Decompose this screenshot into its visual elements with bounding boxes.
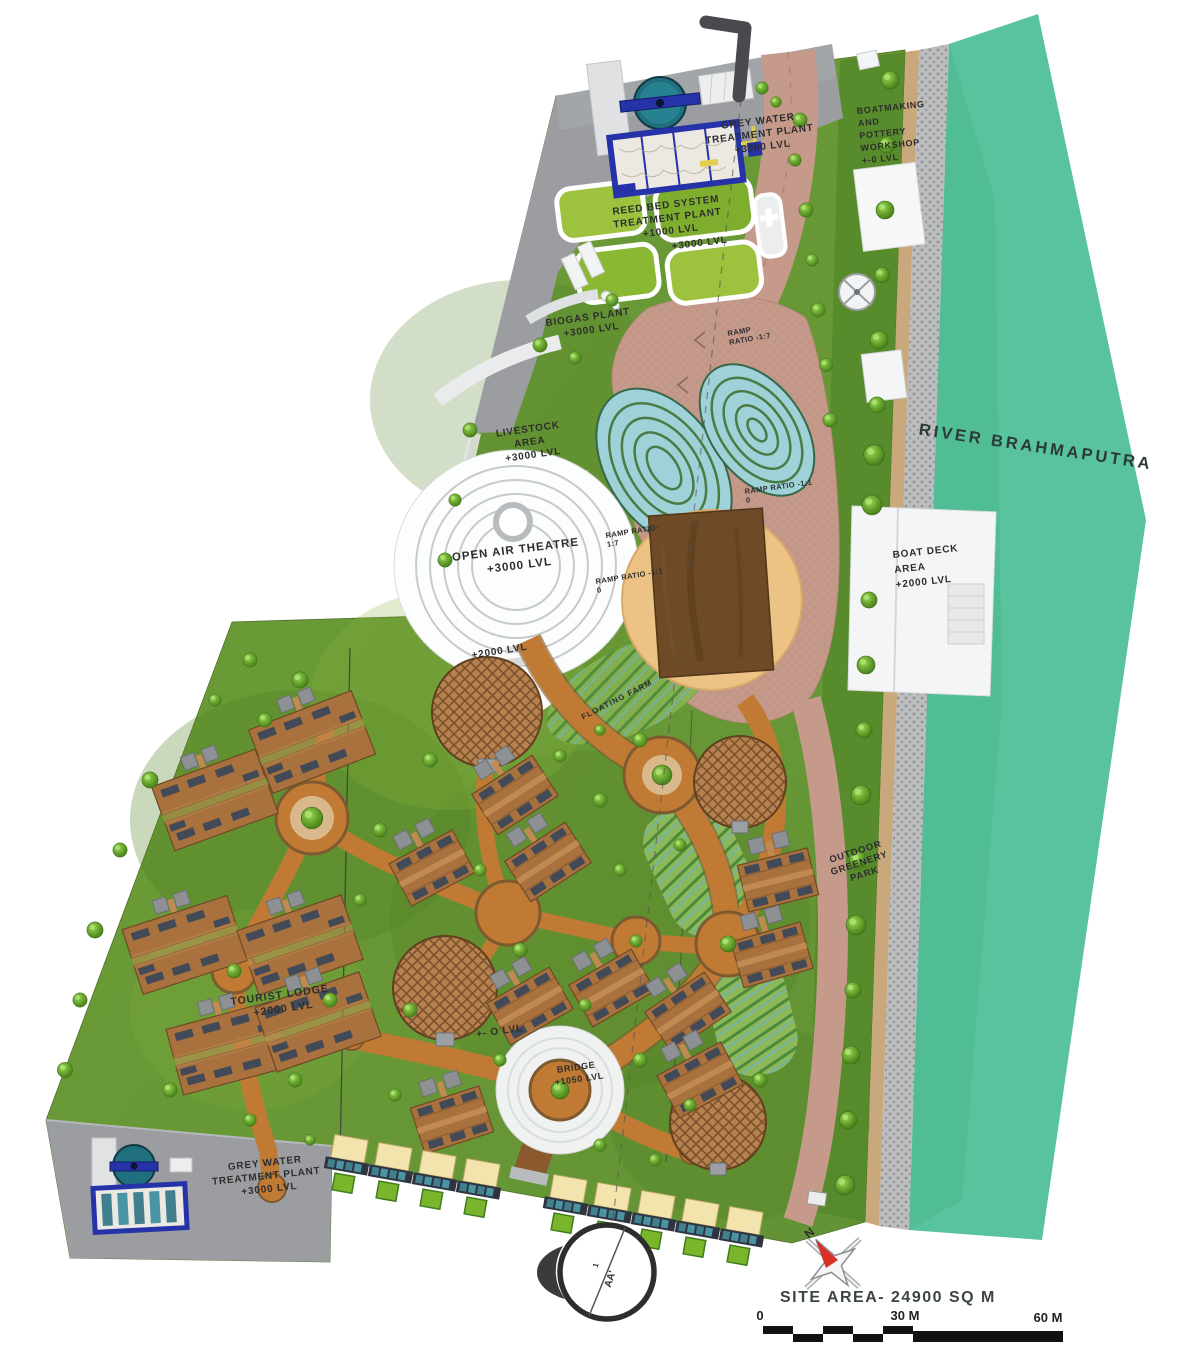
site-area-label: SITE AREA- 24900 SQ M bbox=[780, 1289, 996, 1306]
scale-mid: 30 M bbox=[891, 1308, 920, 1323]
scale-bar: 0 30 M 60 M bbox=[756, 1308, 1063, 1342]
section-symbol: 1 AA' bbox=[537, 1225, 654, 1319]
site-plan: 1 AA' N 0 30 M 60 M SITE AREA- 24900 SQ … bbox=[0, 0, 1200, 1365]
scale-start: 0 bbox=[756, 1308, 763, 1323]
theatre-skylight-ring bbox=[496, 505, 530, 539]
site-plan-canvas: 1 AA' N 0 30 M 60 M SITE AREA- 24900 SQ … bbox=[0, 0, 1200, 1365]
central-pavilion bbox=[622, 508, 802, 690]
scale-end: 60 M bbox=[1034, 1310, 1063, 1325]
deck-steps bbox=[948, 584, 984, 644]
scale-bar-segments bbox=[763, 1326, 1063, 1342]
north-arrow: N bbox=[802, 1225, 860, 1288]
